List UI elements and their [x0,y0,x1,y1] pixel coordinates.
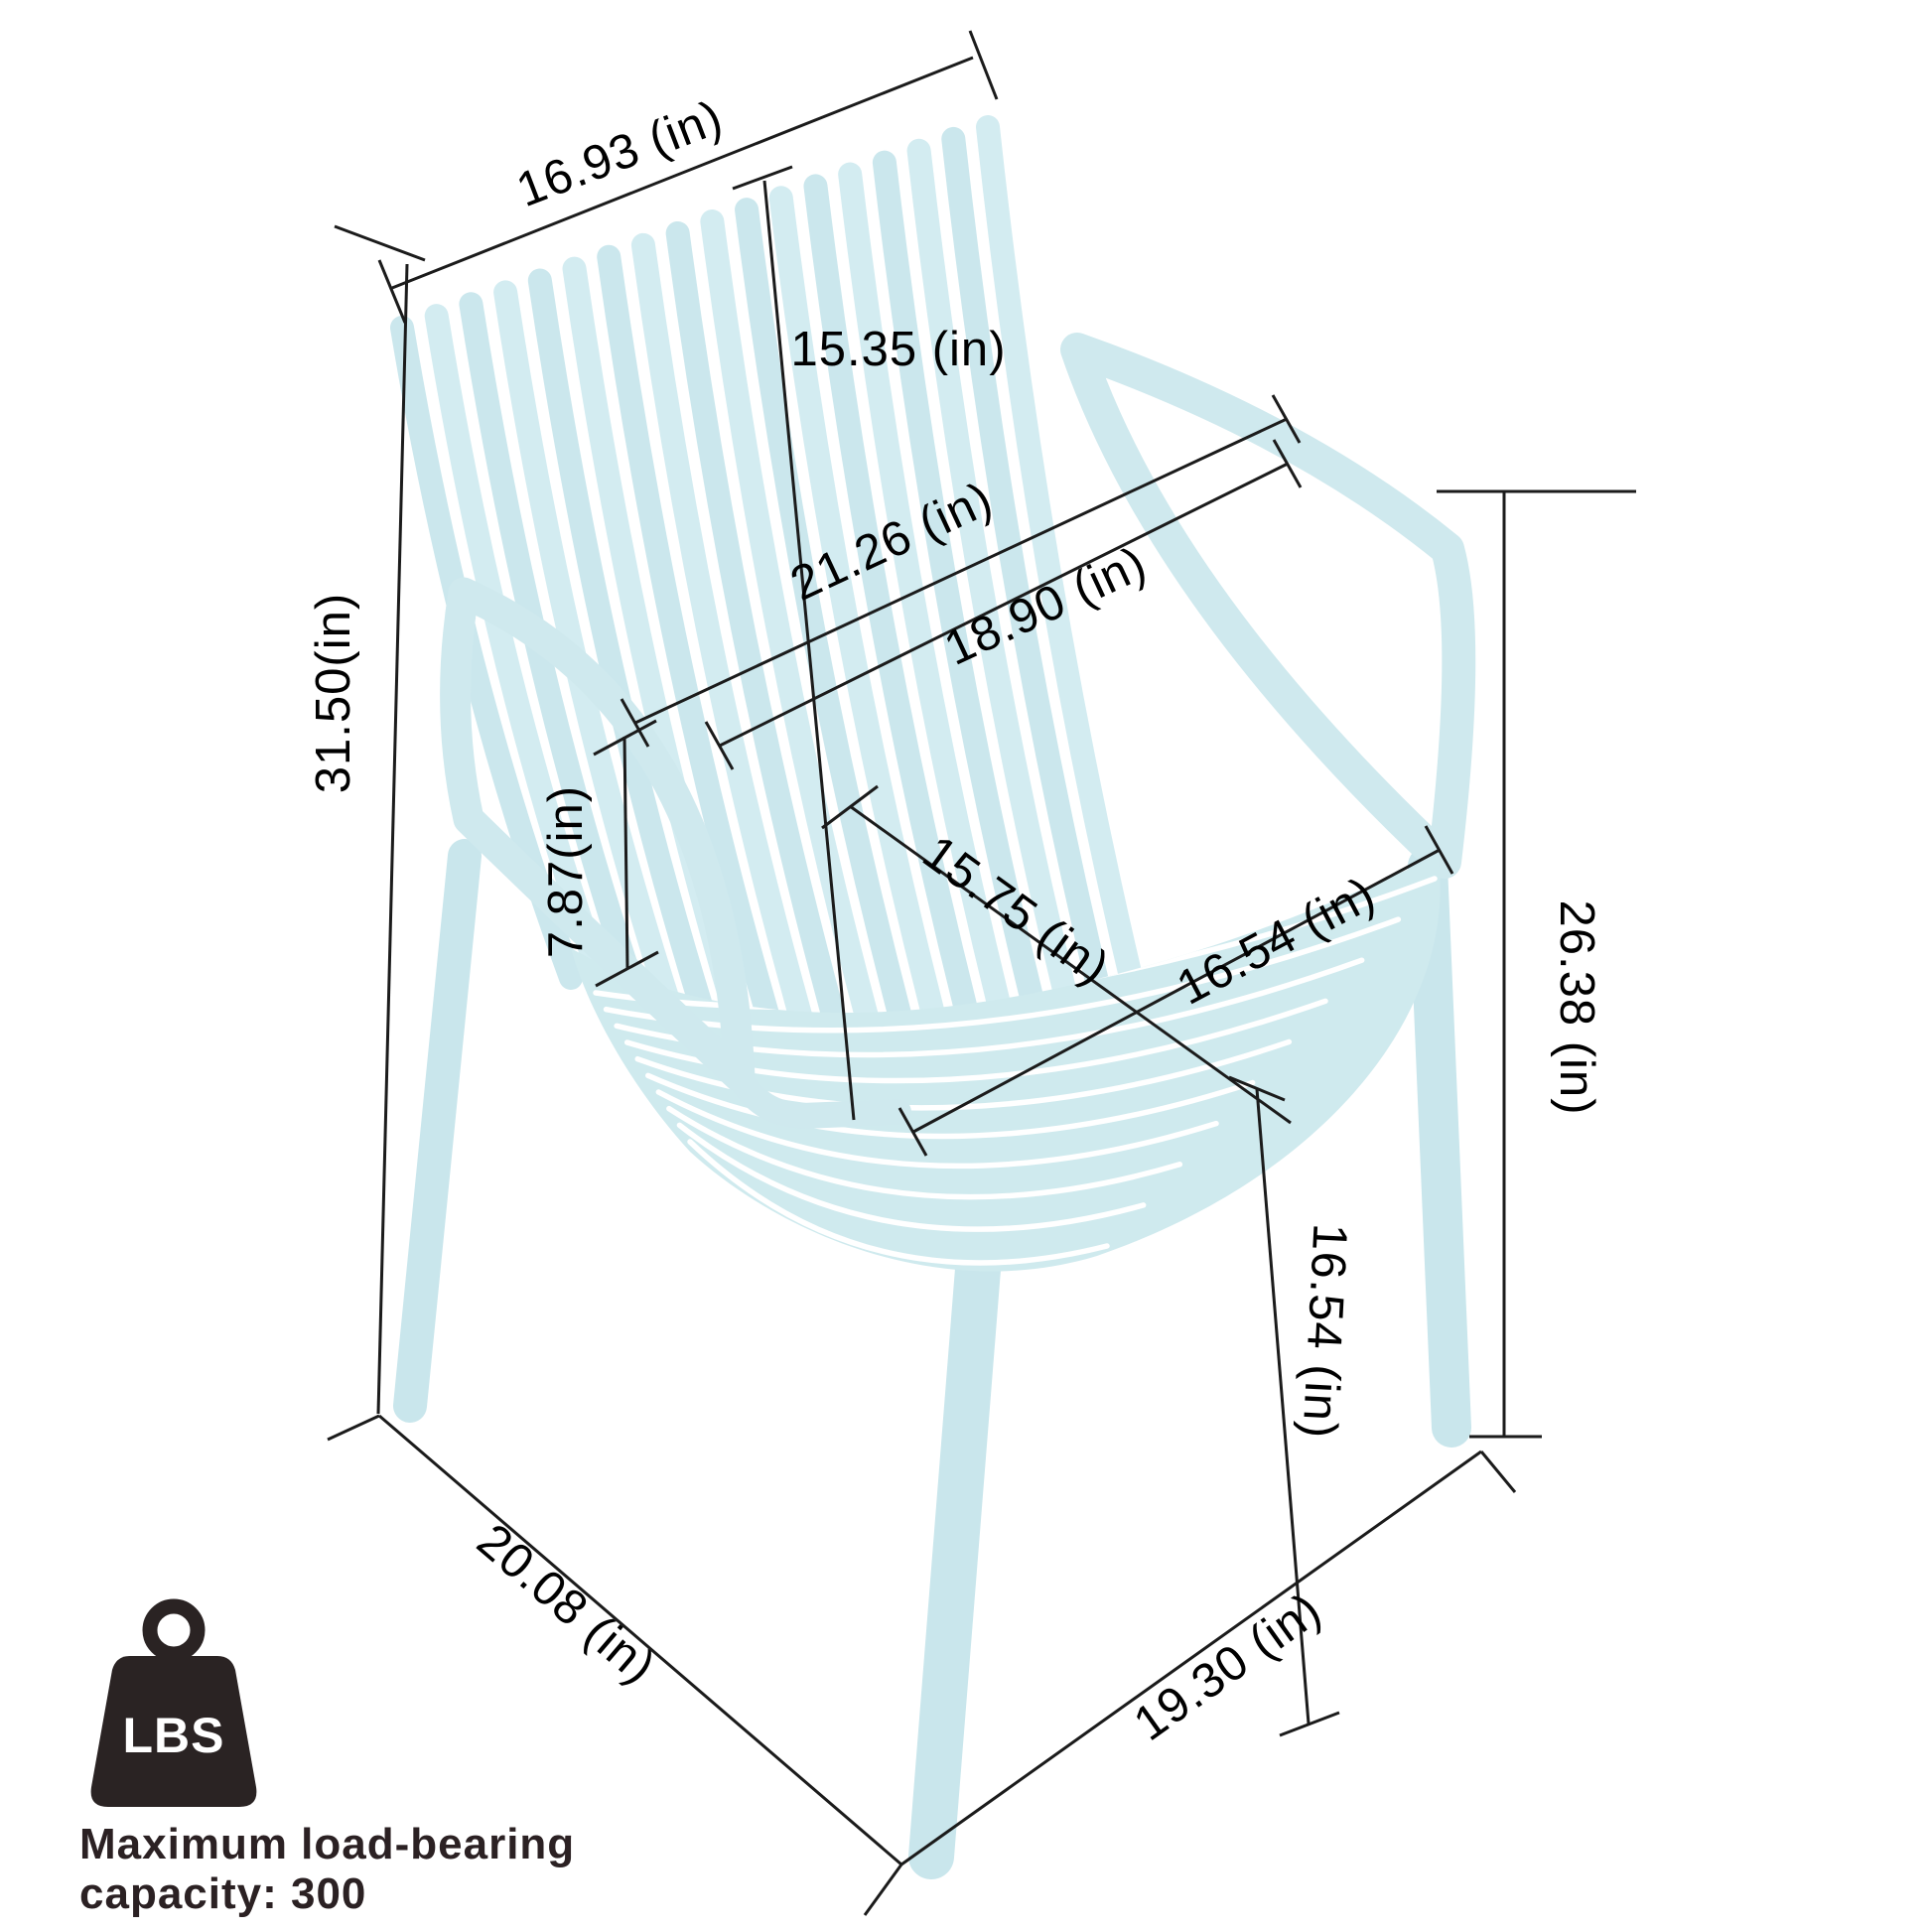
dim-label-base-width: 19.30 (in) [1125,1583,1331,1751]
capacity-caption-line2: capacity: 300 [79,1869,366,1918]
dim-tick [865,1864,901,1915]
dimension-diagram: 16.93 (in) 15.35 (in) 21.26 (in) 18.90 (… [0,0,1932,1932]
dim-line-base-width [901,1451,1481,1864]
capacity-caption-line1: Maximum load-bearing [79,1820,575,1868]
dim-tick [335,226,425,260]
dim-tick [1280,1713,1339,1735]
dim-label-side-height: 26.38 (in) [1550,899,1603,1115]
dim-label-base-depth: 20.08 (in) [467,1514,665,1695]
dim-tick [1481,1451,1515,1492]
dim-label-leg-height: 16.54 (in) [1292,1222,1356,1441]
dimension-diagram-page: 16.93 (in) 15.35 (in) 21.26 (in) 18.90 (… [0,0,1932,1932]
dim-tick [328,1416,379,1440]
dim-label-armrest-height: 7.87(in) [539,785,593,958]
chair-leg-left [410,856,465,1406]
weight-icon-handle [150,1606,198,1654]
dim-label-back-height: 15.35 (in) [790,323,1006,376]
capacity-badge: LBS Maximum load-bearing capacity: 300 [79,1606,575,1918]
dim-line-overall-height [378,264,407,1414]
weight-icon-label: LBS [123,1708,225,1763]
dim-tick [733,167,792,189]
dim-tick [970,31,997,99]
dim-tick [379,260,405,323]
dim-label-overall-height: 31.50(in) [307,593,360,793]
